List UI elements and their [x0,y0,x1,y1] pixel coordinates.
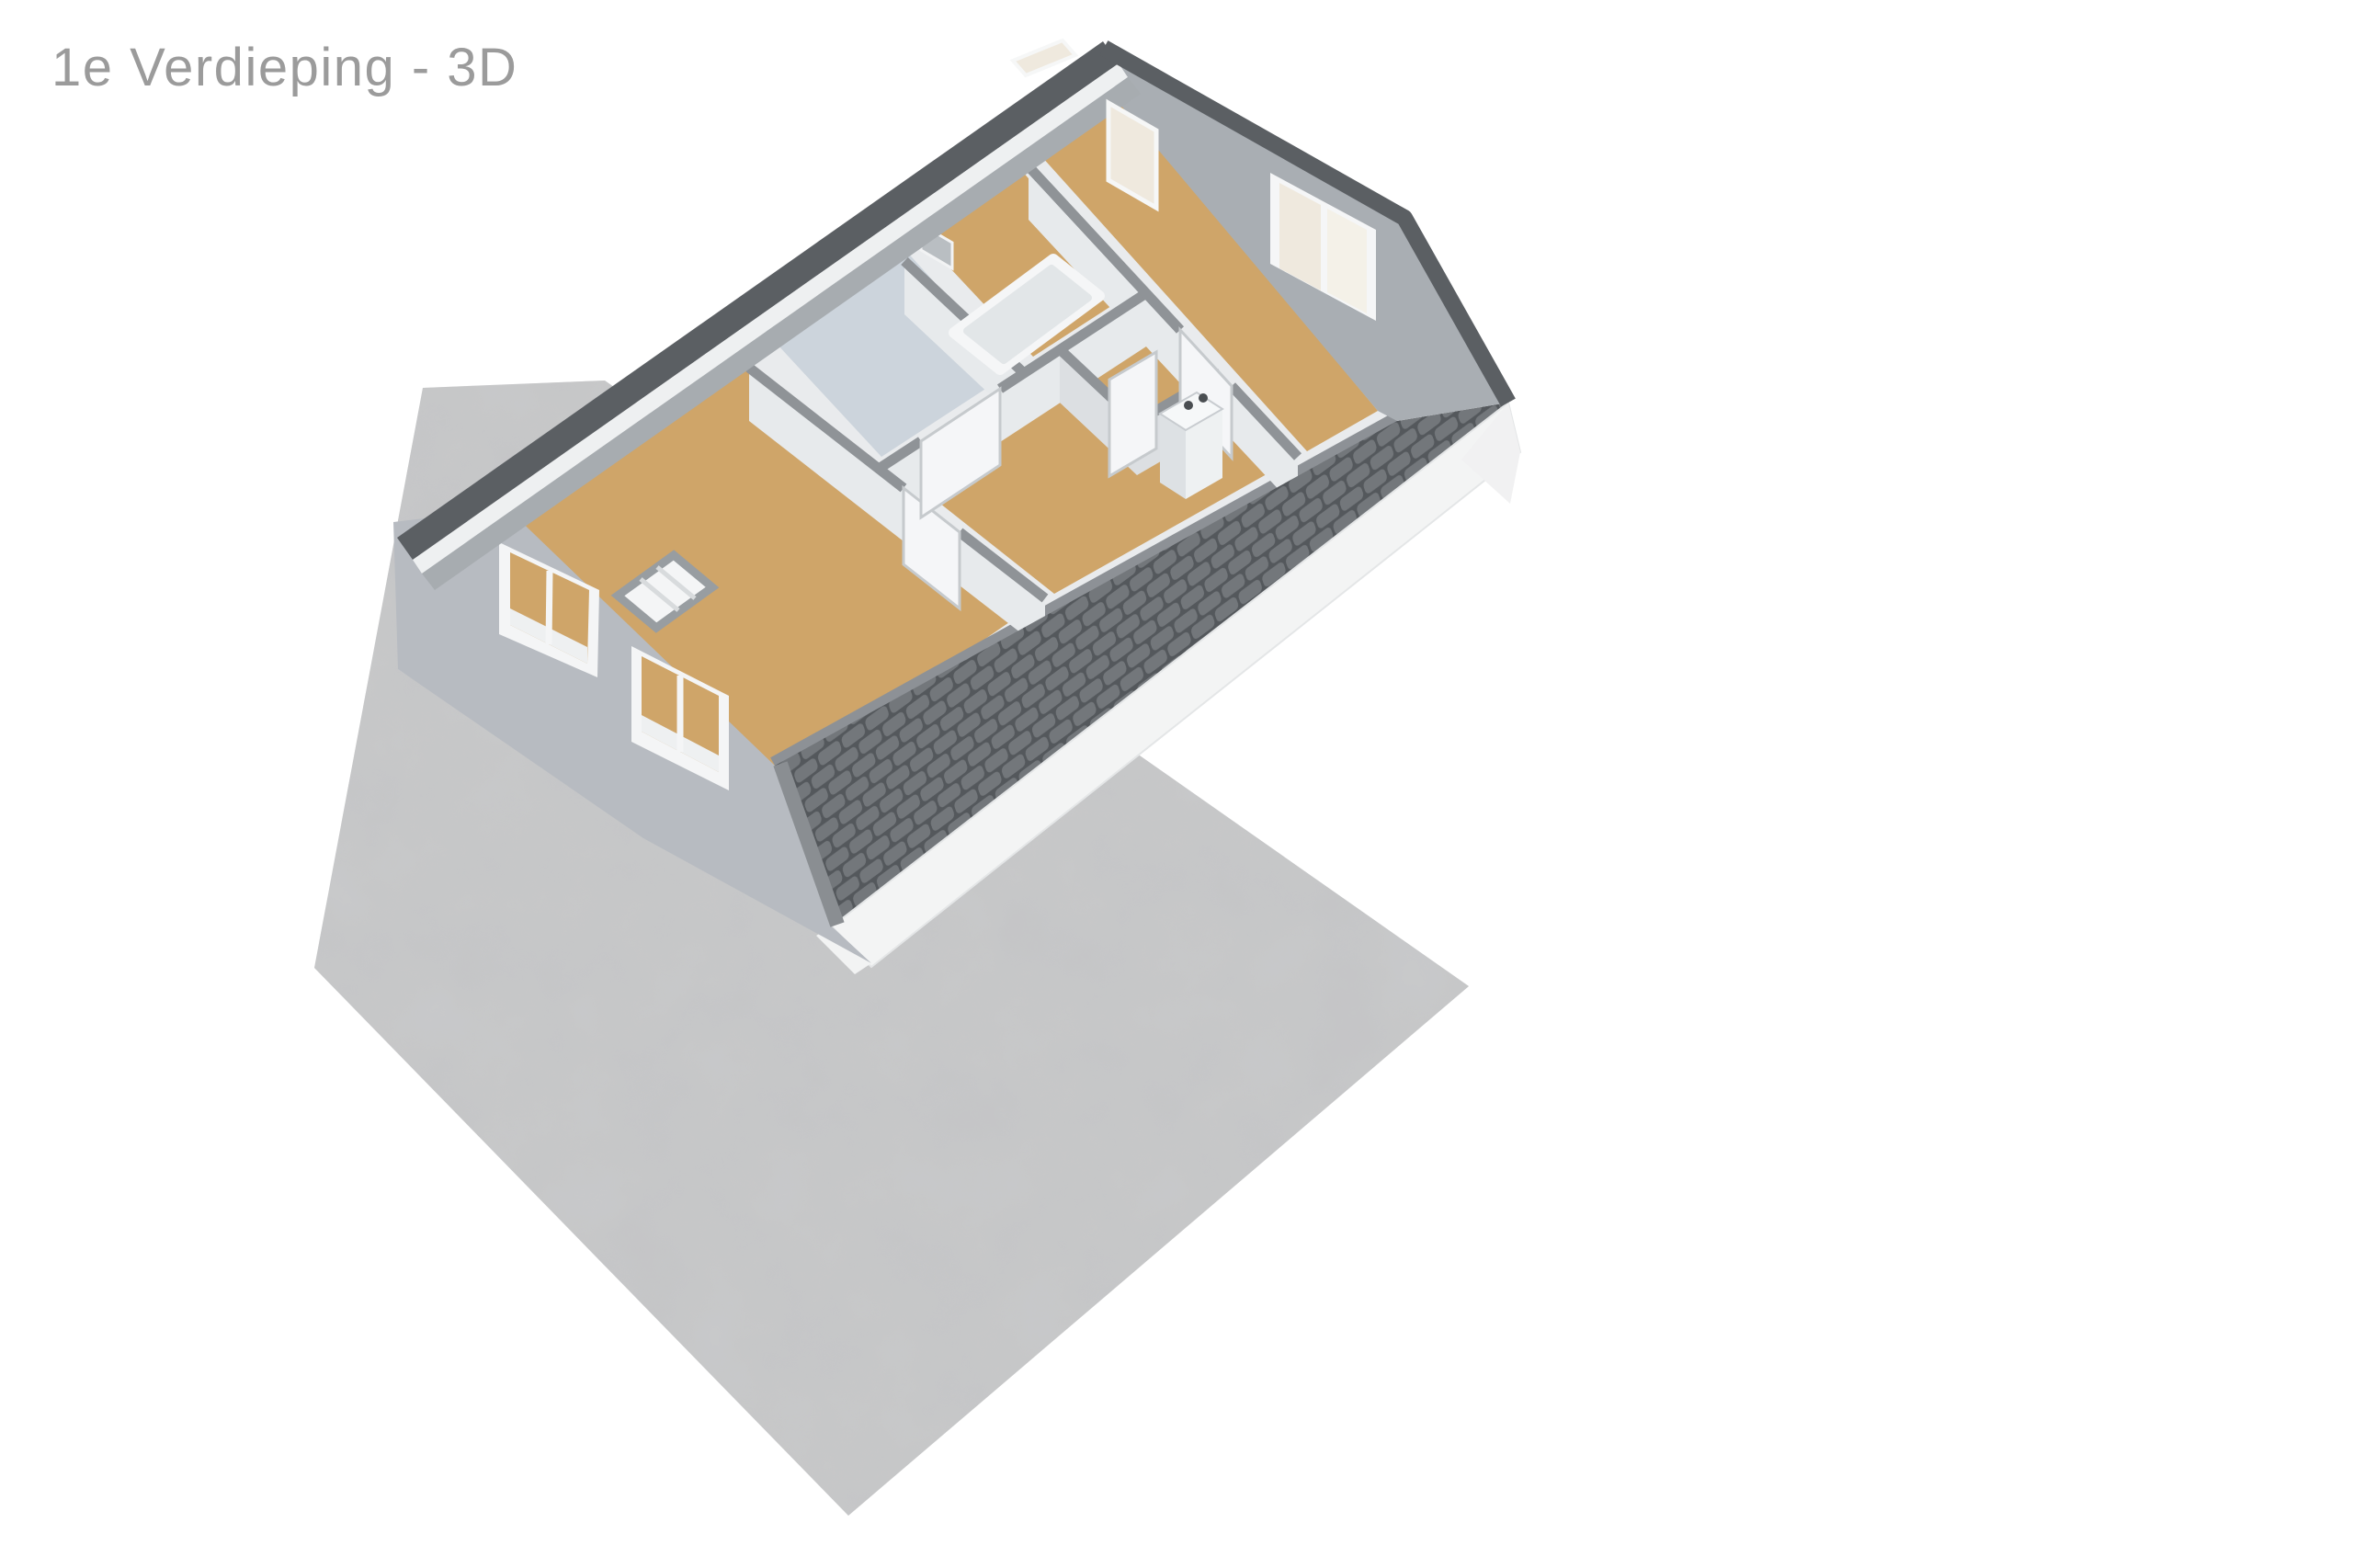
floorplan-3d-render [0,0,2353,1568]
boiler-knob [1184,401,1193,410]
window-mullion [549,571,550,644]
boiler-knob [1199,393,1208,403]
appliance-boiler [1160,392,1222,499]
floorplan-canvas: 1e Verdieping - 3D [0,0,2353,1568]
